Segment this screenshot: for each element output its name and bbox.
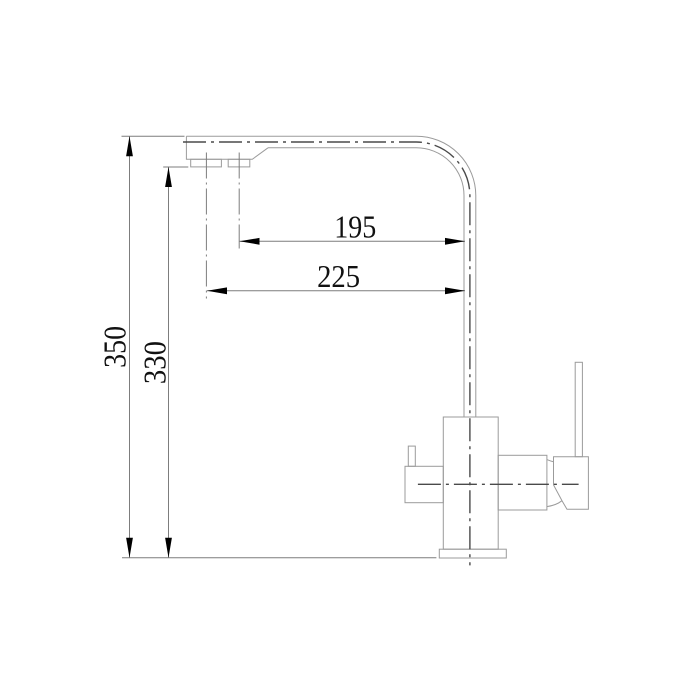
svg-text:330: 330 bbox=[136, 341, 172, 384]
svg-text:195: 195 bbox=[334, 209, 376, 245]
svg-text:225: 225 bbox=[317, 258, 360, 294]
svg-text:350: 350 bbox=[97, 326, 133, 368]
